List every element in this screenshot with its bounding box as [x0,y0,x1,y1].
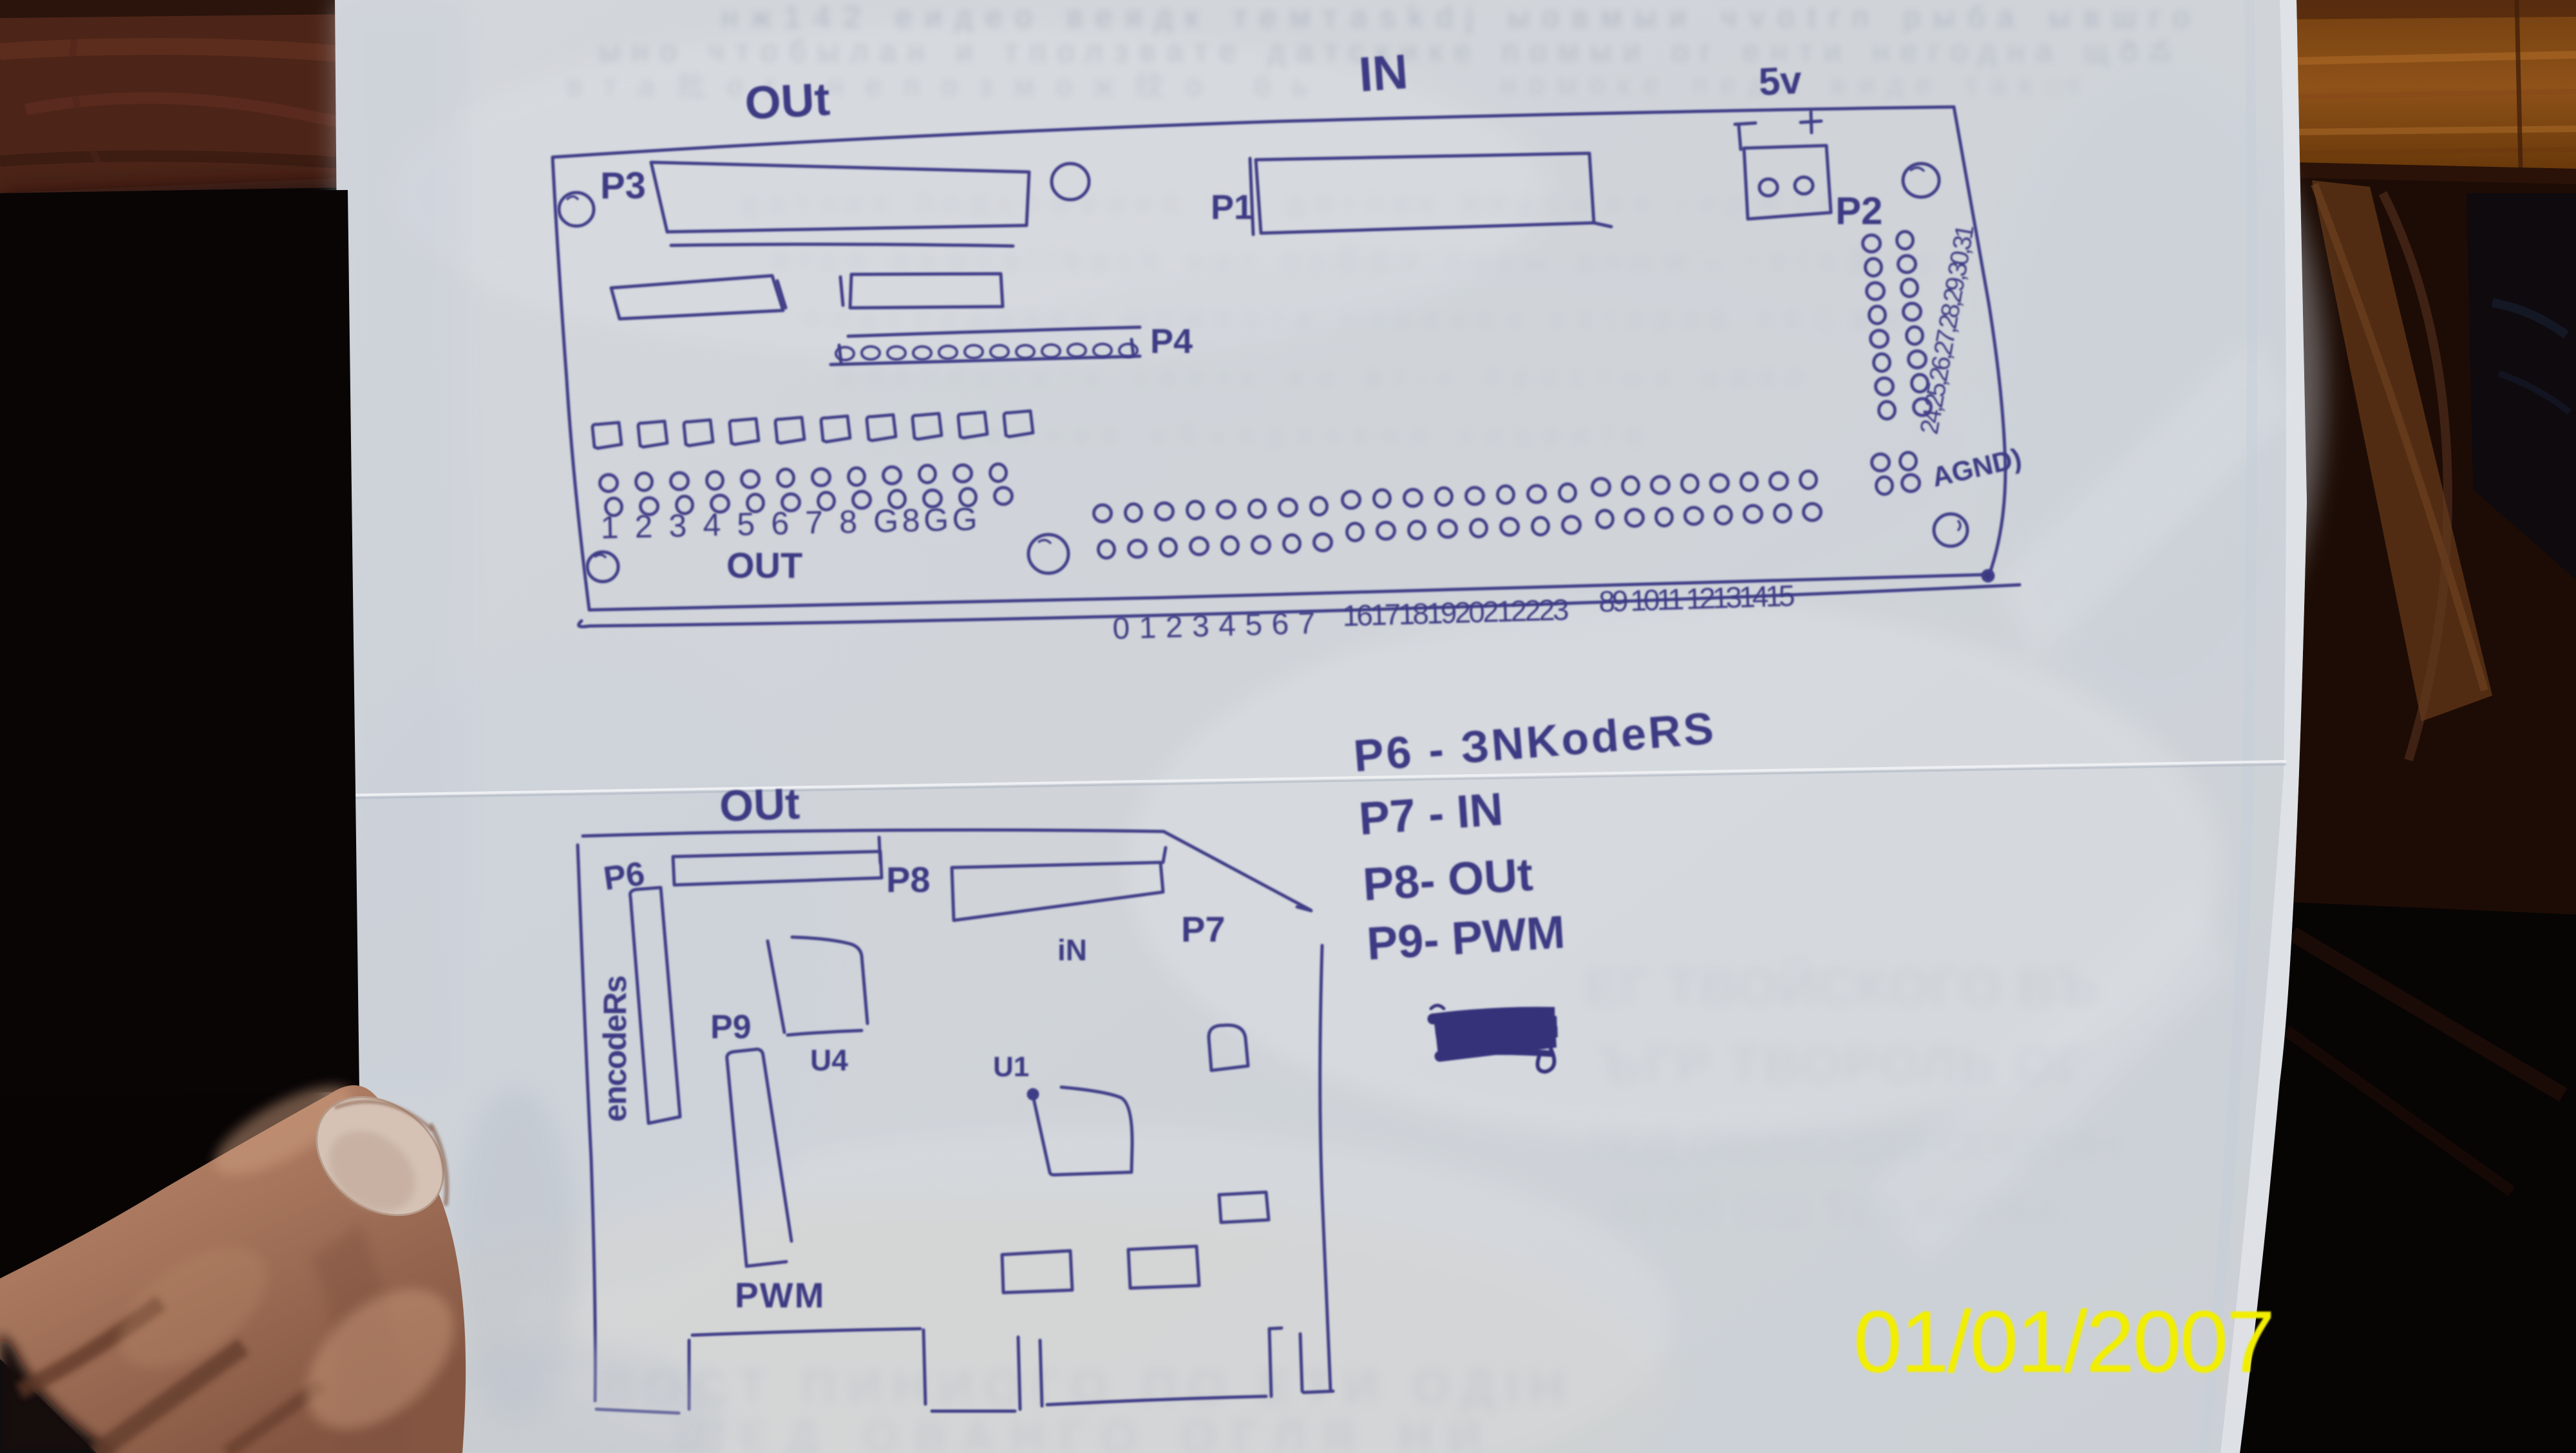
svg-text:U4: U4 [810,1043,848,1077]
svg-text:P8- OUt: P8- OUt [1361,849,1534,911]
svg-text:P3: P3 [600,165,646,207]
svg-text:U1: U1 [993,1051,1029,1083]
svg-text:01/01/2007: 01/01/2007 [1853,1293,2275,1391]
svg-text:обеспечить связь на всіх прост: обеспечить связь на всіх простых наап [837,359,1803,393]
svg-text:encodeRs: encodeRs [597,975,633,1122]
svg-text:ется вимcallback нат воలేదо по: ется вимcallback нат воలేదо повы дныെം г… [773,243,1932,277]
svg-text:PWM: PWM [735,1275,825,1315]
svg-text:P1: P1 [1211,188,1253,227]
svg-text:P4: P4 [1150,322,1193,361]
svg-text:P8: P8 [886,859,931,900]
svg-text:iN: iN [1057,933,1087,967]
svg-text:P7: P7 [1181,909,1226,949]
svg-text:P2: P2 [1835,189,1882,233]
svg-text:P9: P9 [710,1009,752,1046]
svg-text:IN: IN [1357,44,1410,102]
svg-text:89 1011 12131415: 89 1011 12131415 [1598,578,1795,618]
svg-text:P7 - IN: P7 - IN [1358,784,1505,845]
svg-text:ПОД ОФИНО ШИРОООДИН: ПОД ОФИНО ШИРОООДИН [1591,1122,2119,1168]
svg-text:OUt: OUt [744,73,831,129]
svg-text:1617181920212223: 1617181920212223 [1342,593,1569,632]
svg-text:АГАЙ ОШ ТЕХИНОКА: АГАЙ ОШ ТЕХИНОКА [1610,1189,2061,1232]
svg-text:OUt: OUt [719,779,800,831]
svg-text:ВОСТ ПИНИОГО ПО ЕТИ ОДІН: ВОСТ ПИНИОГО ПО ЕТИ ОДІН [599,1358,1565,1415]
svg-text:OUT: OUT [726,545,802,585]
svg-text:5v: 5v [1757,59,1803,104]
svg-text:0 1 2 3 4 5 6 7: 0 1 2 3 4 5 6 7 [1112,606,1316,646]
svg-text:P6: P6 [601,855,647,898]
svg-text:ЕГ ТВОЙСКОГО ВЪ: ЕГ ТВОЙСКОГО ВЪ [1584,957,2099,1016]
